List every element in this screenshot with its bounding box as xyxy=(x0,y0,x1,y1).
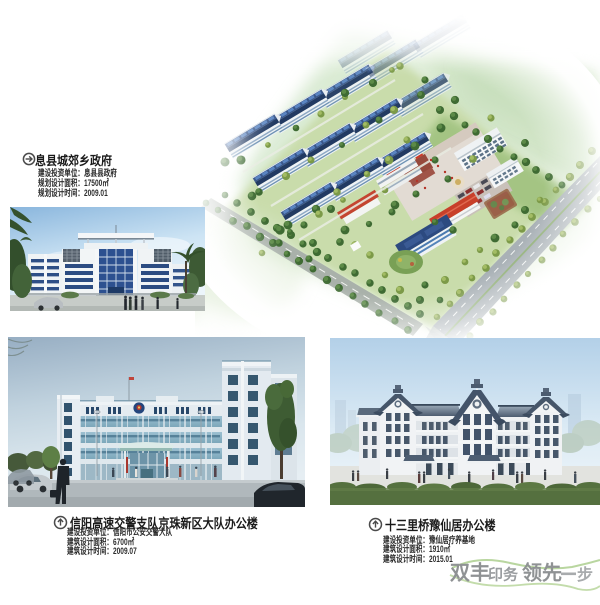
svg-text:步: 步 xyxy=(577,565,593,584)
svg-text:领先: 领先 xyxy=(522,561,562,585)
svg-text:印务: 印务 xyxy=(488,566,519,584)
svg-text:双丰: 双丰 xyxy=(450,561,490,585)
